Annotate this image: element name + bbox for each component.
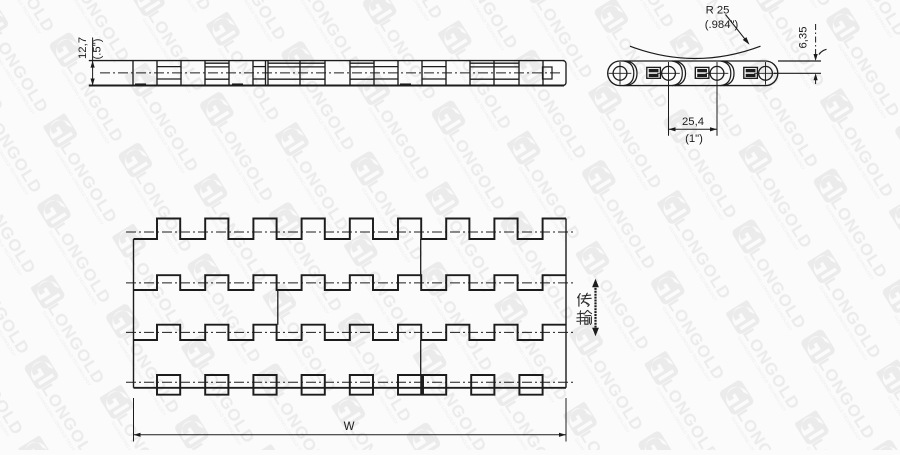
svg-text:(.5"): (.5") (91, 38, 103, 59)
svg-text:W: W (344, 421, 355, 433)
svg-text:25,4: 25,4 (682, 116, 704, 128)
svg-text:(.984"): (.984") (705, 19, 739, 31)
svg-text:6,35: 6,35 (798, 27, 810, 49)
svg-text:R 25: R 25 (706, 5, 730, 17)
svg-text:12,7: 12,7 (77, 37, 89, 59)
svg-text:(1"): (1") (685, 133, 703, 145)
